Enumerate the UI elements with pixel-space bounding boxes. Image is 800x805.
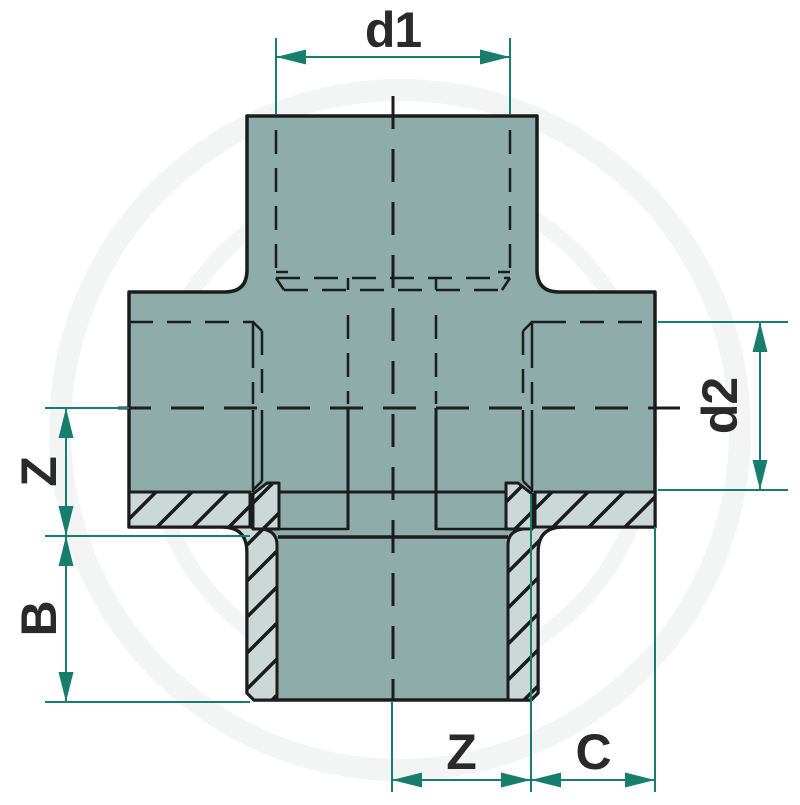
d1-arrow-right	[480, 50, 510, 65]
dimension-label-z-bottom: Z	[446, 724, 476, 780]
nut-flange-left	[129, 492, 250, 527]
dimension-label-b-left: B	[11, 601, 67, 636]
technical-drawing-page: d1 d2 Z B Z C	[0, 0, 800, 800]
c-bottom-arrow-left	[531, 773, 561, 788]
dimension-label-z-left: Z	[11, 457, 67, 487]
dimension-label-c-bottom: C	[575, 724, 610, 780]
d1-arrow-left	[276, 50, 306, 65]
dimension-label-d2: d2	[692, 378, 748, 434]
d2-arrow-top	[753, 322, 768, 352]
d2-arrow-bottom	[753, 460, 768, 490]
nut-lip-right	[506, 483, 532, 529]
dimension-label-d1: d1	[365, 2, 422, 58]
nut-lip-left	[253, 483, 279, 529]
fitting-section-drawing: d1 d2 Z B Z C	[0, 0, 800, 800]
nut-wall-right	[508, 527, 563, 700]
z-bottom-arrow-right	[501, 773, 531, 788]
c-bottom-arrow-right	[625, 773, 655, 788]
b-left-arrow-bottom	[59, 672, 74, 702]
nut-flange-right	[535, 492, 655, 527]
